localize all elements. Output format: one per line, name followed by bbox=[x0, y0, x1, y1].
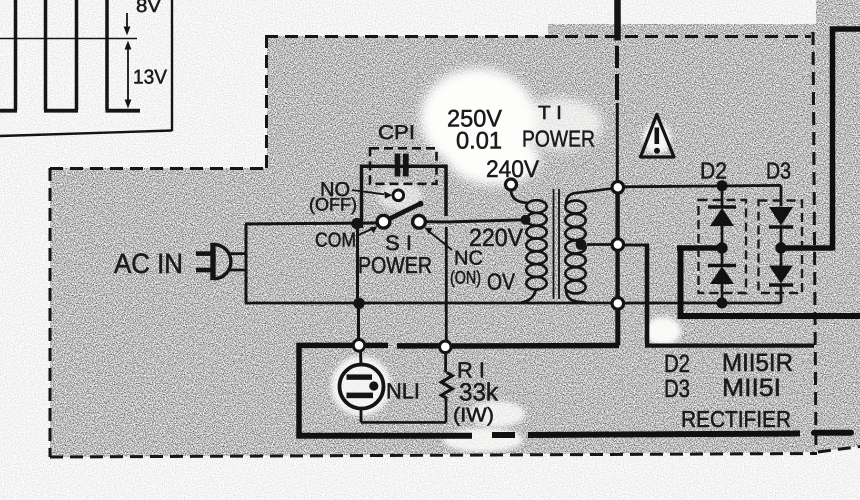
svg-text:T I: T I bbox=[538, 103, 562, 124]
svg-text:AC IN: AC IN bbox=[114, 248, 183, 279]
svg-text:D3: D3 bbox=[766, 158, 791, 184]
svg-text:(IW): (IW) bbox=[453, 405, 494, 427]
svg-text:MII5I: MII5I bbox=[722, 374, 781, 402]
svg-text:0.01: 0.01 bbox=[456, 128, 502, 155]
svg-text:POWER: POWER bbox=[522, 126, 595, 152]
svg-text:CPI: CPI bbox=[378, 122, 415, 144]
svg-text:POWER: POWER bbox=[358, 252, 432, 278]
svg-text:(ON): (ON) bbox=[450, 268, 481, 288]
svg-text:OV: OV bbox=[487, 269, 516, 295]
svg-text:8V: 8V bbox=[136, 0, 161, 17]
svg-text:RECTIFIER: RECTIFIER bbox=[681, 406, 791, 432]
svg-text:240V: 240V bbox=[486, 156, 539, 183]
svg-text:33k: 33k bbox=[459, 379, 498, 407]
svg-text:220V: 220V bbox=[469, 224, 523, 252]
svg-text:D2: D2 bbox=[664, 350, 690, 378]
svg-text:(OFF): (OFF) bbox=[309, 195, 357, 215]
svg-text:MII5IR: MII5IR bbox=[722, 349, 793, 377]
svg-text:13V: 13V bbox=[133, 67, 168, 89]
svg-text:NLI: NLI bbox=[386, 379, 420, 404]
svg-text:D2: D2 bbox=[700, 158, 727, 184]
svg-text:COM: COM bbox=[315, 230, 356, 252]
svg-text:D3: D3 bbox=[664, 375, 690, 403]
